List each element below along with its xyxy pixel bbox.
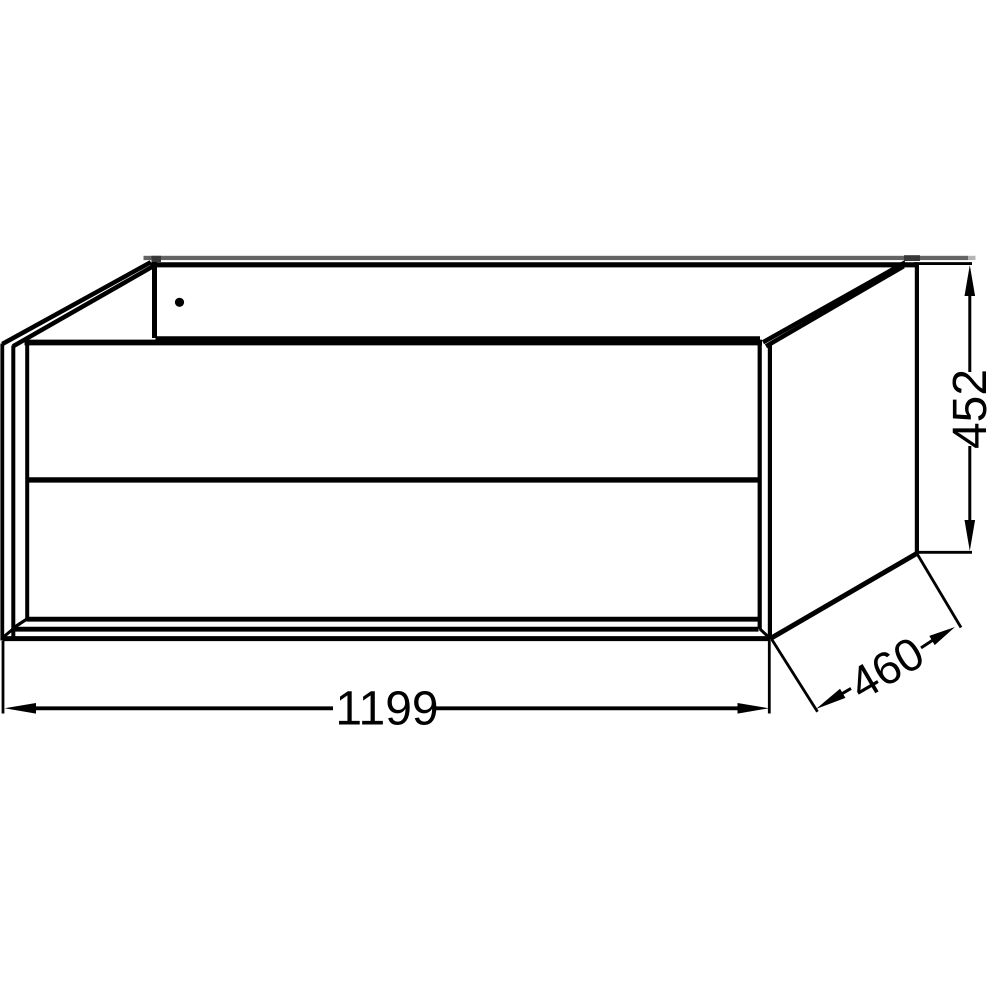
svg-text:1199: 1199 bbox=[335, 683, 438, 736]
svg-text:452: 452 bbox=[944, 369, 997, 449]
